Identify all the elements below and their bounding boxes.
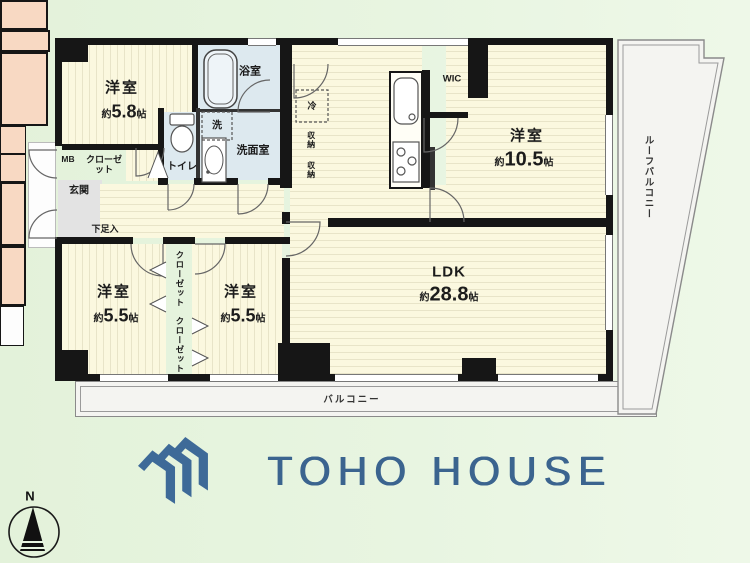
entrance-alcove	[28, 142, 56, 248]
wall	[62, 144, 158, 150]
entrance-label: 玄関	[69, 185, 89, 197]
window	[100, 374, 168, 382]
wic-box	[0, 52, 48, 126]
bedroom-5-5-left-size: 約5.5帖	[93, 305, 138, 326]
wic-label: WIC	[443, 75, 461, 86]
wall	[462, 358, 496, 376]
shoe-box	[0, 30, 50, 52]
wall	[606, 330, 613, 381]
hallway	[100, 184, 284, 238]
window	[248, 38, 276, 46]
wall	[282, 258, 290, 381]
wall	[268, 178, 292, 185]
window	[335, 374, 458, 382]
bedroom-5-5-right-size: 約5.5帖	[220, 305, 265, 326]
closet-upper-box	[0, 182, 26, 246]
bedroom-5-8-size: 約5.8帖	[101, 101, 146, 122]
wall	[55, 374, 100, 381]
window	[605, 115, 613, 195]
storage-lower-label: 収納	[306, 161, 315, 179]
compass-icon	[9, 507, 59, 557]
roof-balcony-label: ルーフバルコニー	[642, 135, 653, 219]
toho-house-logo: TOHO HOUSE	[0, 433, 750, 509]
wall	[468, 38, 488, 98]
closet-lower-box	[0, 246, 26, 306]
storage-lower-box	[0, 154, 26, 182]
window	[338, 38, 406, 46]
wall	[328, 218, 612, 227]
wall	[198, 109, 282, 112]
bedroom-5-8-nook	[126, 145, 162, 181]
bath-label: 浴室	[239, 66, 261, 79]
balcony-label: バルコニー	[323, 396, 380, 407]
window	[605, 235, 613, 330]
wall	[55, 38, 62, 146]
wall	[168, 374, 210, 381]
toilet-label: トイレ	[167, 161, 197, 173]
bedroom-5-8-label: 洋室	[105, 79, 139, 96]
wall	[55, 237, 133, 244]
compass-north-label: N	[25, 489, 34, 504]
ldk-size: 約28.8帖	[420, 284, 479, 307]
closet-entry-label: クローゼット	[86, 155, 122, 176]
wall	[192, 45, 198, 112]
bedroom-5-5-left-label: 洋室	[97, 283, 131, 300]
storage-upper-box	[0, 126, 26, 154]
wall	[468, 38, 612, 45]
room-bath	[198, 45, 282, 112]
laundry-label: 洗	[212, 120, 222, 132]
meter-box-label: MB	[61, 155, 74, 165]
toho-house-logo-icon	[138, 437, 210, 505]
wall	[280, 38, 292, 188]
wall	[194, 178, 238, 185]
wall	[606, 38, 613, 115]
wall	[310, 38, 338, 45]
wall	[163, 237, 195, 244]
wall	[158, 178, 168, 185]
washroom-label: 洗面室	[237, 145, 270, 158]
bedroom-10-5-label: 洋室	[510, 127, 544, 144]
window	[406, 38, 468, 46]
shoe-box-label: 下足入	[91, 224, 118, 234]
meter-box	[0, 306, 24, 346]
floor-plan-page: 洋室 約5.8帖 浴室 洗 洗面室 トイレ MB クローゼット 玄関 下足入 冷…	[0, 0, 750, 563]
bedroom-10-5-size: 約10.5帖	[495, 149, 554, 172]
storage-upper-label: 収納	[306, 131, 315, 149]
wall	[225, 237, 290, 244]
wall	[282, 212, 290, 224]
wall	[422, 112, 468, 118]
wall	[606, 195, 613, 235]
fridge-label: 冷	[307, 101, 316, 111]
wall	[422, 70, 430, 188]
wall	[430, 147, 435, 190]
toho-house-logo-text: TOHO HOUSE	[268, 448, 613, 495]
bedroom-5-5-right-label: 洋室	[224, 283, 258, 300]
closet-lower-label: クローゼット	[174, 317, 184, 374]
closet-upper-label: クローゼット	[174, 251, 184, 308]
wall	[55, 240, 62, 352]
ldk-label: LDK	[432, 263, 466, 280]
window	[498, 374, 598, 382]
closet-entry-box	[0, 0, 48, 30]
wall	[158, 108, 164, 184]
window	[210, 374, 278, 382]
